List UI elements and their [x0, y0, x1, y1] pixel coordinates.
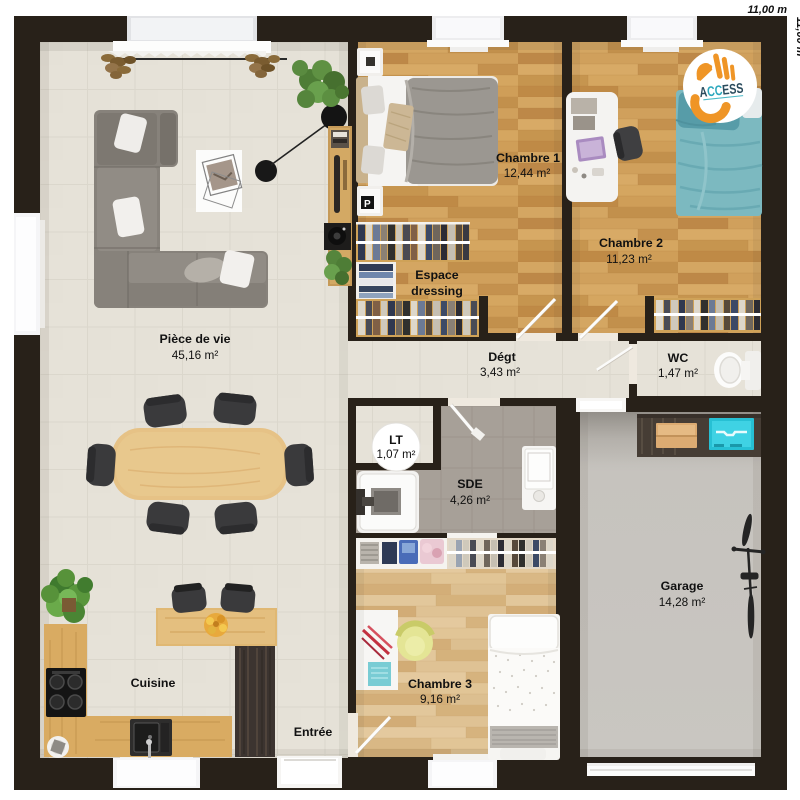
svg-text:45,16 m²: 45,16 m²	[172, 348, 219, 362]
svg-text:Espace: Espace	[415, 268, 459, 282]
svg-text:SDE: SDE	[457, 477, 482, 491]
svg-text:Chambre 2: Chambre 2	[599, 236, 663, 250]
svg-text:P: P	[364, 199, 371, 210]
svg-text:Pièce de vie: Pièce de vie	[160, 332, 231, 346]
svg-text:11,23 m²: 11,23 m²	[606, 252, 652, 266]
svg-text:1,47 m²: 1,47 m²	[658, 366, 698, 380]
svg-text:9,16 m²: 9,16 m²	[420, 692, 460, 706]
svg-text:Chambre 3: Chambre 3	[408, 677, 472, 691]
svg-text:LT: LT	[389, 433, 403, 447]
svg-text:dressing: dressing	[411, 284, 463, 298]
svg-text:Cuisine: Cuisine	[131, 676, 176, 690]
svg-text:14,28 m²: 14,28 m²	[659, 595, 706, 609]
svg-text:12,44 m²: 12,44 m²	[504, 166, 551, 180]
svg-text:4,26 m²: 4,26 m²	[450, 493, 490, 507]
svg-text:Chambre 1: Chambre 1	[496, 151, 560, 165]
svg-text:Dégt: Dégt	[488, 350, 516, 364]
svg-text:11,00 m: 11,00 m	[794, 17, 800, 57]
svg-text:1,07 m²: 1,07 m²	[377, 449, 416, 461]
svg-text:Entrée: Entrée	[294, 725, 333, 739]
svg-text:3,43 m²: 3,43 m²	[480, 365, 520, 379]
svg-text:11,00 m: 11,00 m	[747, 4, 787, 16]
svg-text:Garage: Garage	[661, 579, 704, 593]
svg-text:WC: WC	[668, 351, 689, 365]
